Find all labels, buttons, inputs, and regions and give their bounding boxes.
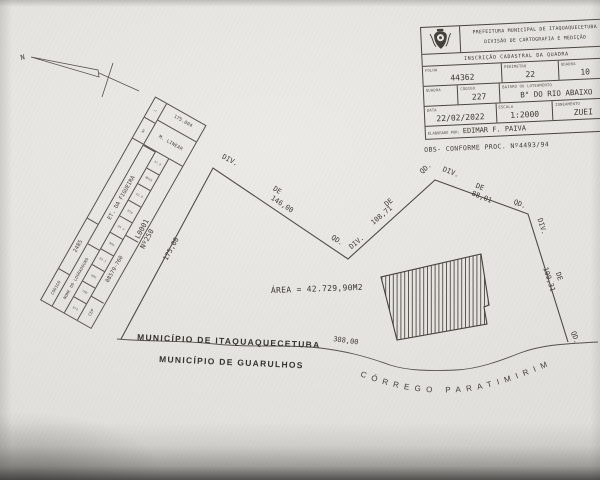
field-escala-label: ESCALA [498,104,513,110]
dimension-109: 109,31 [541,266,556,293]
title-block: PREFEITURA MUNICIPAL DE ITAQUAQUECETUBA … [420,18,600,140]
segment-label-de: DE [554,271,564,281]
vertex-label-div: DIV. [348,234,366,251]
field-folha: FOLHA 44362 [423,63,503,86]
field-data-value: 22/02/2022 [425,112,496,124]
field-data-label: DATA [427,107,437,112]
building-footprint [381,254,489,340]
field-quadra-label: QUADRA [561,61,576,67]
field-escala-value: 1:2000 [497,109,553,121]
area-label: ÁREA = 42.729,90M2 [271,281,363,295]
field-bairro-label: BAIRRO OU LOTEAMENTO [502,82,552,89]
north-label: N [20,53,26,62]
dimension-175: 175,00 [162,236,181,262]
field-codigo: CÓDIGO 227 [458,83,501,104]
dimension-146: 146,00 [269,194,295,214]
municipal-crest-logo [421,26,461,54]
vertex-label-div: DIV. [535,217,548,236]
north-arrow-tail [99,63,139,97]
field-perimetro-label: PERÍMETRO [504,63,527,69]
property-boundary-line [121,168,568,342]
municipality-bottom-label: MUNICÍPIO DE GUARULHOS [159,354,304,370]
field-zoneamento: ZONEAMENTO ZUEI [553,98,600,120]
vertex-label-div: DIV. [221,153,240,168]
dimension-388: 388,00 [333,335,359,346]
field-folha-label: FOLHA [425,67,438,73]
vertex-label-qd: QD. [512,198,527,210]
field-perimetro-value: 22 [502,69,558,81]
scanned-sheet: N DIV. DE 146,00 QD. DIV. DE 108,71 QD. … [0,0,600,480]
field-folha-value: 44362 [423,71,501,84]
field-quadra2-label: QUADRA [426,87,441,93]
field-escala: ESCALA 1:2000 [496,101,554,123]
field-zoneamento-label: ZONEAMENTO [555,101,580,107]
field-quadra-value: 10 [559,66,600,77]
stream-name-text: CÓRREGO PARATIMIRIM [359,358,553,395]
field-perimetro: PERÍMETRO 22 [502,61,560,83]
field-quadra2-value [424,93,457,95]
north-arrow-icon [31,57,99,77]
field-codigo-value: 227 [459,91,500,102]
field-zoneamento-value: ZUEI [553,106,600,118]
vertex-label-qd: QD. [330,234,345,248]
field-data: DATA 22/02/2022 [425,104,497,126]
field-elaborado-value: EDIMAR F. PAIVA [463,124,527,135]
field-quadra: QUADRA 10 [559,58,600,79]
field-elaborado-label: ELABORADO POR: [428,129,460,135]
field-quadra2: QUADRA [424,85,459,106]
municipality-top-label: MUNICÍPIO DE ITAQUAQUECETUBA [137,332,321,350]
stream-name-label: CÓRREGO PARATIMIRIM [359,358,553,395]
field-codigo-label: CÓDIGO [460,86,475,92]
vertex-label-qd: QD. [569,330,581,345]
vertex-label-div: DIV. [441,165,460,179]
dimension-88: 88,01 [470,189,493,204]
dimension-108: 108,71 [369,204,394,226]
vertex-label-qd: QD. [418,161,433,175]
